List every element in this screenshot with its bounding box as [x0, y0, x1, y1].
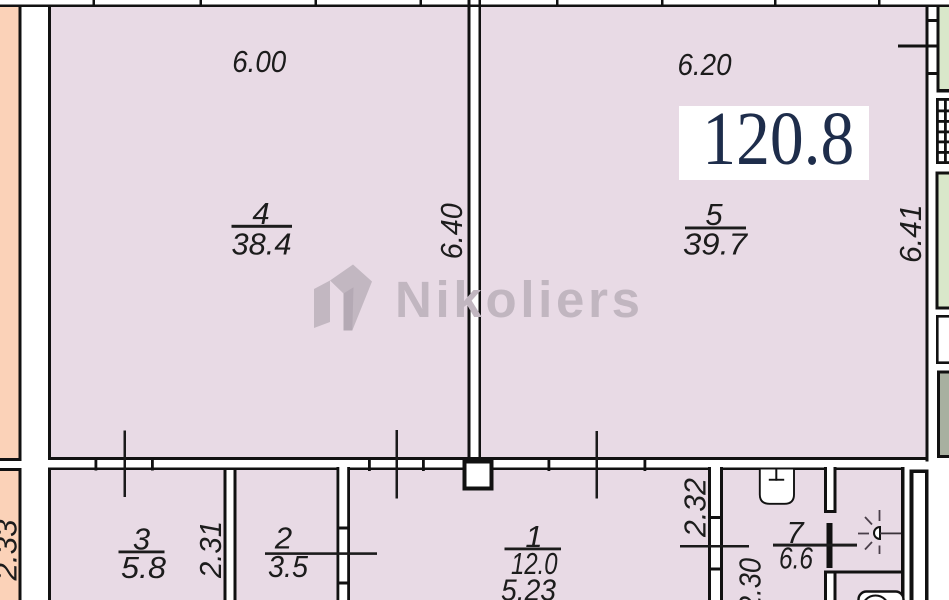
svg-text:6.6: 6.6: [779, 541, 814, 576]
svg-text:6.00: 6.00: [232, 44, 286, 79]
svg-text:2.30: 2.30: [733, 558, 768, 600]
svg-text:Nikoliers: Nikoliers: [395, 271, 644, 328]
svg-text:6.41: 6.41: [893, 204, 928, 263]
svg-text:2.32: 2.32: [677, 478, 712, 538]
svg-text:6.40: 6.40: [434, 203, 469, 259]
svg-text:38.4: 38.4: [232, 227, 292, 262]
svg-text:6.20: 6.20: [678, 47, 732, 82]
svg-text:2.33: 2.33: [0, 520, 23, 582]
svg-text:5.8: 5.8: [121, 550, 167, 585]
svg-text:5.23: 5.23: [501, 573, 556, 600]
svg-text:39.7: 39.7: [683, 227, 749, 262]
svg-text:120.8: 120.8: [702, 97, 854, 181]
svg-text:3.5: 3.5: [268, 549, 309, 584]
svg-text:2.31: 2.31: [193, 521, 228, 579]
